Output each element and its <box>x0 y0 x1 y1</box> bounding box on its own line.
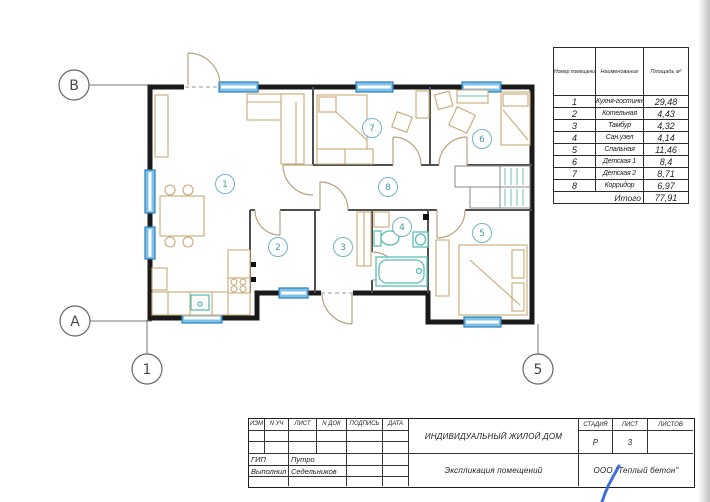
sofa <box>247 94 304 164</box>
furniture <box>152 90 530 315</box>
column-header: Наименование <box>596 48 644 96</box>
signature-cell <box>347 454 383 466</box>
axis-marker: 1 <box>132 354 162 384</box>
door-arc <box>188 53 220 85</box>
toy-box <box>449 107 476 134</box>
room-area-cell: 4,14 <box>644 132 689 144</box>
window <box>145 170 155 213</box>
empty-cell <box>289 477 347 486</box>
room-number: 6 <box>479 135 485 145</box>
door-arc <box>439 137 467 165</box>
page-edge <box>698 0 710 502</box>
room-area-cell: 8,71 <box>644 168 689 180</box>
window <box>145 227 155 259</box>
room-name-cell: Спальная <box>596 144 644 156</box>
room-number: 5 <box>479 229 485 239</box>
empty-cell <box>383 431 409 443</box>
tb-col-header: N ДОК <box>317 419 347 431</box>
title-block: ИЗМ N УЧ ЛИСТ N ДОК ПОДПИСЬ ДАТА ГИП Пут… <box>248 418 695 488</box>
explication-table: Номер помещения Наименование Площадь м² … <box>553 47 689 204</box>
empty-cell <box>347 431 383 443</box>
room-number: 2 <box>275 243 281 253</box>
room-badge: 5 <box>473 224 492 243</box>
room-num-cell: 8 <box>554 180 596 192</box>
table-row: 6Детская 18,4 <box>554 156 689 168</box>
room-number: 7 <box>369 124 375 134</box>
room-num-cell: 2 <box>554 108 596 120</box>
bed-child1 <box>501 92 530 145</box>
bed-child2 <box>317 95 367 151</box>
signature-role: Выполнил <box>249 466 289 478</box>
chair <box>392 112 413 133</box>
project-title: ИНДИВИДУАЛЬНЫЙ ЖИЛОЙ ДОМ <box>409 419 579 454</box>
chair <box>434 91 452 109</box>
empty-cell <box>383 477 409 486</box>
drawing-sheet: 1 2 3 4 5 6 7 8 В А 1 5 Номер помещения … <box>0 0 710 502</box>
room-name-cell: Корридор <box>596 180 644 192</box>
kitchen-sink <box>191 295 209 310</box>
signature-name: Седельников <box>289 466 347 478</box>
total-label-cell: Итого <box>554 192 644 204</box>
room-num-cell: 3 <box>554 120 596 132</box>
date-cell <box>383 466 409 478</box>
table-row: 8Корридор6,97 <box>554 180 689 192</box>
axis-marker: 5 <box>523 354 553 384</box>
table-row: 7Детская 28,71 <box>554 168 689 180</box>
room-badge: 8 <box>379 178 398 197</box>
table-row: 5Спальная11,46 <box>554 144 689 156</box>
room-number: 1 <box>222 180 228 190</box>
empty-cell <box>265 431 289 443</box>
room-number: 8 <box>385 183 391 193</box>
company-name: ООО "Теплый бетон" <box>579 454 693 486</box>
room-badge: 4 <box>393 218 412 237</box>
washing-machine <box>374 212 389 227</box>
room-name-cell: Детская 1 <box>596 156 644 168</box>
room-area-cell: 6,97 <box>644 180 689 192</box>
room-area-cell: 8,4 <box>644 156 689 168</box>
bedroom-wardrobe <box>436 240 449 296</box>
stage-label: СТАДИЯ <box>579 419 613 431</box>
room-badge: 2 <box>269 238 288 257</box>
dining-table <box>160 185 204 247</box>
door-arc <box>255 210 280 235</box>
room-area-cell: 4,32 <box>644 120 689 132</box>
table-row: 3Тамбур4,32 <box>554 120 689 132</box>
axis-label: А <box>70 314 80 330</box>
empty-cell <box>347 442 383 454</box>
door-arc <box>393 137 421 165</box>
bathtub <box>376 257 427 286</box>
empty-cell <box>317 431 347 443</box>
tb-col-header: ИЗМ <box>249 419 265 431</box>
tb-col-header: ЛИСТ <box>289 419 317 431</box>
window <box>219 82 258 92</box>
empty-cell <box>347 477 383 486</box>
room-number: 4 <box>399 223 405 233</box>
room-badge: 3 <box>334 238 353 257</box>
axis-marker: В <box>59 70 89 100</box>
room-badge: 7 <box>363 119 382 138</box>
room-num-cell: 1 <box>554 96 596 108</box>
empty-cell <box>383 442 409 454</box>
room-num-cell: 5 <box>554 144 596 156</box>
sheets-value <box>648 431 693 454</box>
double-bed <box>459 245 527 315</box>
door-arc <box>283 165 313 195</box>
room-name-cell: Сан.узел <box>596 132 644 144</box>
empty-cell <box>317 442 347 454</box>
axis-label: В <box>69 78 79 94</box>
table-row: 1Кухня-гостинная29,48 <box>554 96 689 108</box>
empty-cell <box>265 442 289 454</box>
empty-cell <box>249 431 265 443</box>
signature-cell <box>347 466 383 478</box>
table-header-row: Номер помещения Наименование Площадь м² <box>554 48 689 96</box>
table-row: 4Сан.узел4,14 <box>554 132 689 144</box>
table-total-row: Итого 77,91 <box>554 192 689 204</box>
empty-cell <box>249 442 265 454</box>
closets <box>455 166 530 208</box>
sheets-label: ЛИСТОВ <box>648 419 693 431</box>
tb-col-header: ПОДПИСЬ <box>347 419 383 431</box>
stage-value: Р <box>579 431 613 454</box>
window <box>464 317 501 327</box>
window <box>356 82 393 92</box>
sheet-label: ЛИСТ <box>613 419 648 431</box>
room-name-cell: Котельная <box>596 108 644 120</box>
table-row: 2Котельная4,43 <box>554 108 689 120</box>
room-area-cell: 11,46 <box>644 144 689 156</box>
signature-name: Путро <box>289 454 347 466</box>
room-name-cell: Тамбур <box>596 120 644 132</box>
tv-cabinet <box>155 95 168 157</box>
column-header: Площадь м² <box>644 48 689 96</box>
door-arc <box>437 210 465 238</box>
room-badge: 1 <box>216 175 235 194</box>
door-arc <box>320 182 348 210</box>
room-num-cell: 6 <box>554 156 596 168</box>
axis-marker: А <box>60 306 90 336</box>
room-num-cell: 4 <box>554 132 596 144</box>
window <box>279 288 308 298</box>
desk <box>416 91 429 118</box>
room-num-cell: 7 <box>554 168 596 180</box>
tb-col-header: ДАТА <box>383 419 409 431</box>
room-badge: 6 <box>473 130 492 149</box>
empty-cell <box>249 477 289 486</box>
total-area-cell: 77,91 <box>644 192 689 204</box>
sink <box>413 232 428 247</box>
document-title: Экспликация помещений <box>409 454 579 486</box>
empty-cell <box>289 431 317 443</box>
date-cell <box>383 454 409 466</box>
empty-cell <box>289 442 317 454</box>
column-header: Номер помещения <box>554 48 596 96</box>
signature-role: ГИП <box>249 454 289 466</box>
tb-col-header: N УЧ <box>265 419 289 431</box>
axis-label: 5 <box>534 362 543 378</box>
room-area-cell: 29,48 <box>644 96 689 108</box>
room-name-cell: Детская 2 <box>596 168 644 180</box>
sheet-value: 3 <box>613 431 648 454</box>
axis-label: 1 <box>143 362 152 378</box>
room-number: 3 <box>340 243 346 253</box>
room-name-cell: Кухня-гостинная <box>596 96 644 108</box>
room-area-cell: 4,43 <box>644 108 689 120</box>
